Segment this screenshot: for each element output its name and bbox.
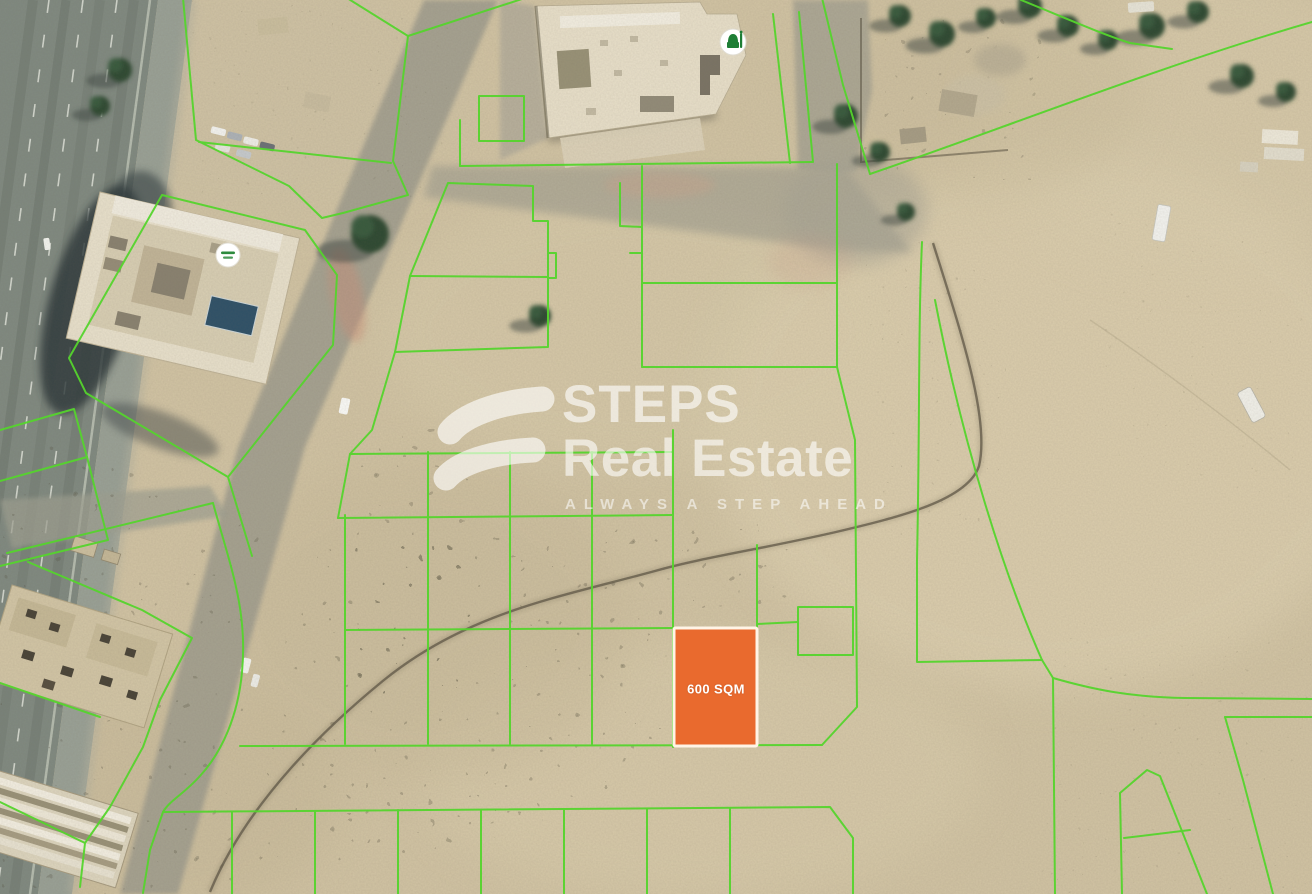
satellite-imagery xyxy=(0,0,1312,894)
place-label-marker xyxy=(216,243,240,267)
mosque-marker xyxy=(720,29,746,55)
highlighted-plot-label: 600 SQM xyxy=(687,682,745,697)
satellite-plot-map: STEPS Real Estate ALWAYS A STEP AHEAD 60… xyxy=(0,0,1312,894)
grain-overlay xyxy=(0,0,1312,894)
